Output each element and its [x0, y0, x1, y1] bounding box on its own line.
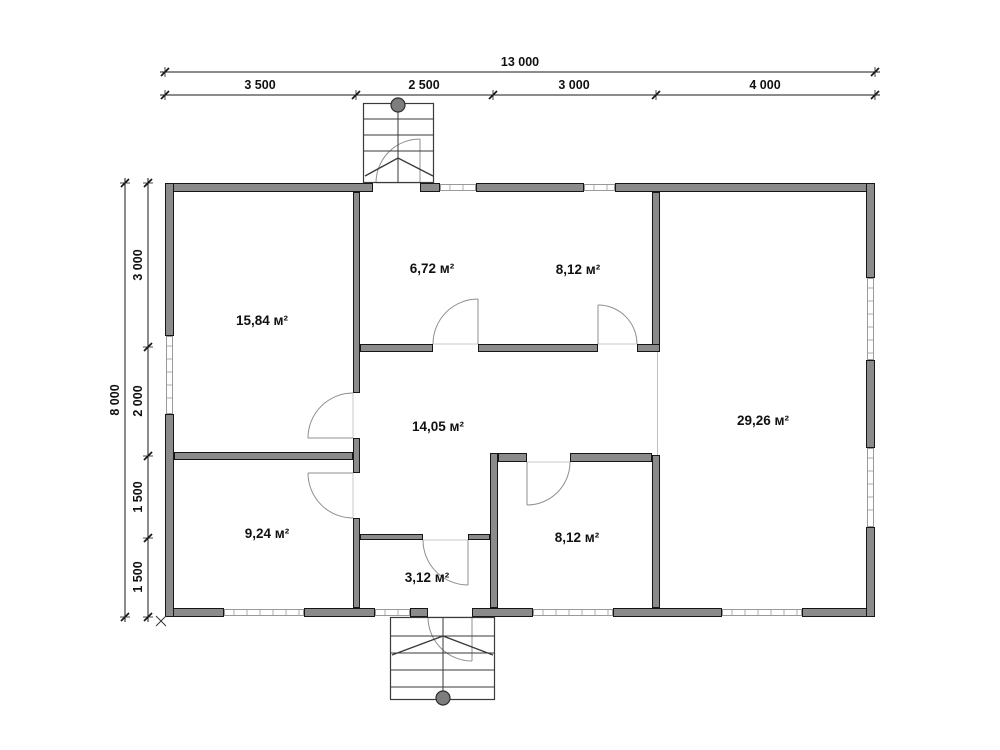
wall-segment [477, 184, 584, 192]
wall-segment [354, 519, 360, 608]
room-label-15-84: 15,84 м² [236, 313, 289, 328]
floor-plan-page: 13 0003 5002 5003 0004 0008 0003 0002 00… [0, 0, 1000, 750]
wall-segment [867, 528, 875, 617]
room-label-6-72: 6,72 м² [410, 261, 455, 276]
wall-segment [479, 345, 598, 352]
wall-segment [653, 193, 660, 352]
wall-segment [166, 184, 373, 192]
wall-segment [166, 184, 174, 336]
window [441, 185, 476, 191]
dimension-label: 3 000 [558, 78, 589, 92]
wall-segment [469, 535, 490, 540]
room-label-8-12-top: 8,12 м² [556, 262, 601, 277]
dimension-label: 3 000 [131, 249, 145, 280]
wall-segment [166, 609, 224, 617]
door-room-1584-swing-arc [308, 393, 353, 438]
door-room-672-swing-arc [433, 299, 478, 344]
window [868, 449, 874, 527]
window [723, 610, 802, 616]
dimension-label: 1 500 [131, 561, 145, 592]
window [534, 610, 613, 616]
wall-segment [175, 453, 353, 460]
wall-segment [411, 609, 428, 617]
wall-segment [653, 456, 660, 608]
wall-segment [473, 609, 533, 617]
wall-segment [638, 345, 660, 352]
door-room-812-top-swing-arc [598, 305, 637, 344]
room-label-9-24: 9,24 м² [245, 526, 290, 541]
dimension-label: 4 000 [749, 78, 780, 92]
window [585, 185, 615, 191]
wall-segment [305, 609, 375, 617]
wall-segment [361, 345, 433, 352]
wall-segment [421, 184, 440, 192]
window [167, 337, 173, 414]
stair-top-direction-arrow [365, 158, 433, 176]
room-label-8-12-bottom: 8,12 м² [555, 530, 600, 545]
wall-segment [803, 609, 875, 617]
room-label-29-26: 29,26 м² [737, 413, 790, 428]
wall-segment [491, 454, 498, 608]
room-label-14-05: 14,05 м² [412, 419, 465, 434]
window [225, 610, 304, 616]
dimension-label: 2 500 [408, 78, 439, 92]
wall-segment [571, 454, 652, 462]
door-room-812-bottom-swing-arc [527, 462, 570, 505]
dimension-label: 3 500 [244, 78, 275, 92]
wall-segment [354, 193, 360, 393]
dimension-label: 1 500 [131, 481, 145, 512]
room-label-3-12: 3,12 м² [405, 570, 450, 585]
window [376, 610, 410, 616]
dimension-label: 8 000 [108, 384, 122, 415]
wall-segment [614, 609, 722, 617]
stair-bottom-newel-circle [436, 691, 450, 705]
dimension-label: 2 000 [131, 385, 145, 416]
wall-segment [499, 454, 527, 462]
dimension-label: 13 000 [501, 55, 539, 69]
wall-segment [166, 415, 174, 617]
door-room-924-swing-arc [308, 473, 353, 518]
floor-plan-drawing: 13 0003 5002 5003 0004 0008 0003 0002 00… [0, 0, 1000, 750]
wall-segment [867, 361, 875, 448]
window [868, 279, 874, 360]
wall-segment [616, 184, 875, 192]
wall-segment [361, 535, 423, 540]
wall-segment [867, 184, 875, 278]
stair-top-newel-circle [391, 98, 405, 112]
wall-segment [354, 439, 360, 473]
